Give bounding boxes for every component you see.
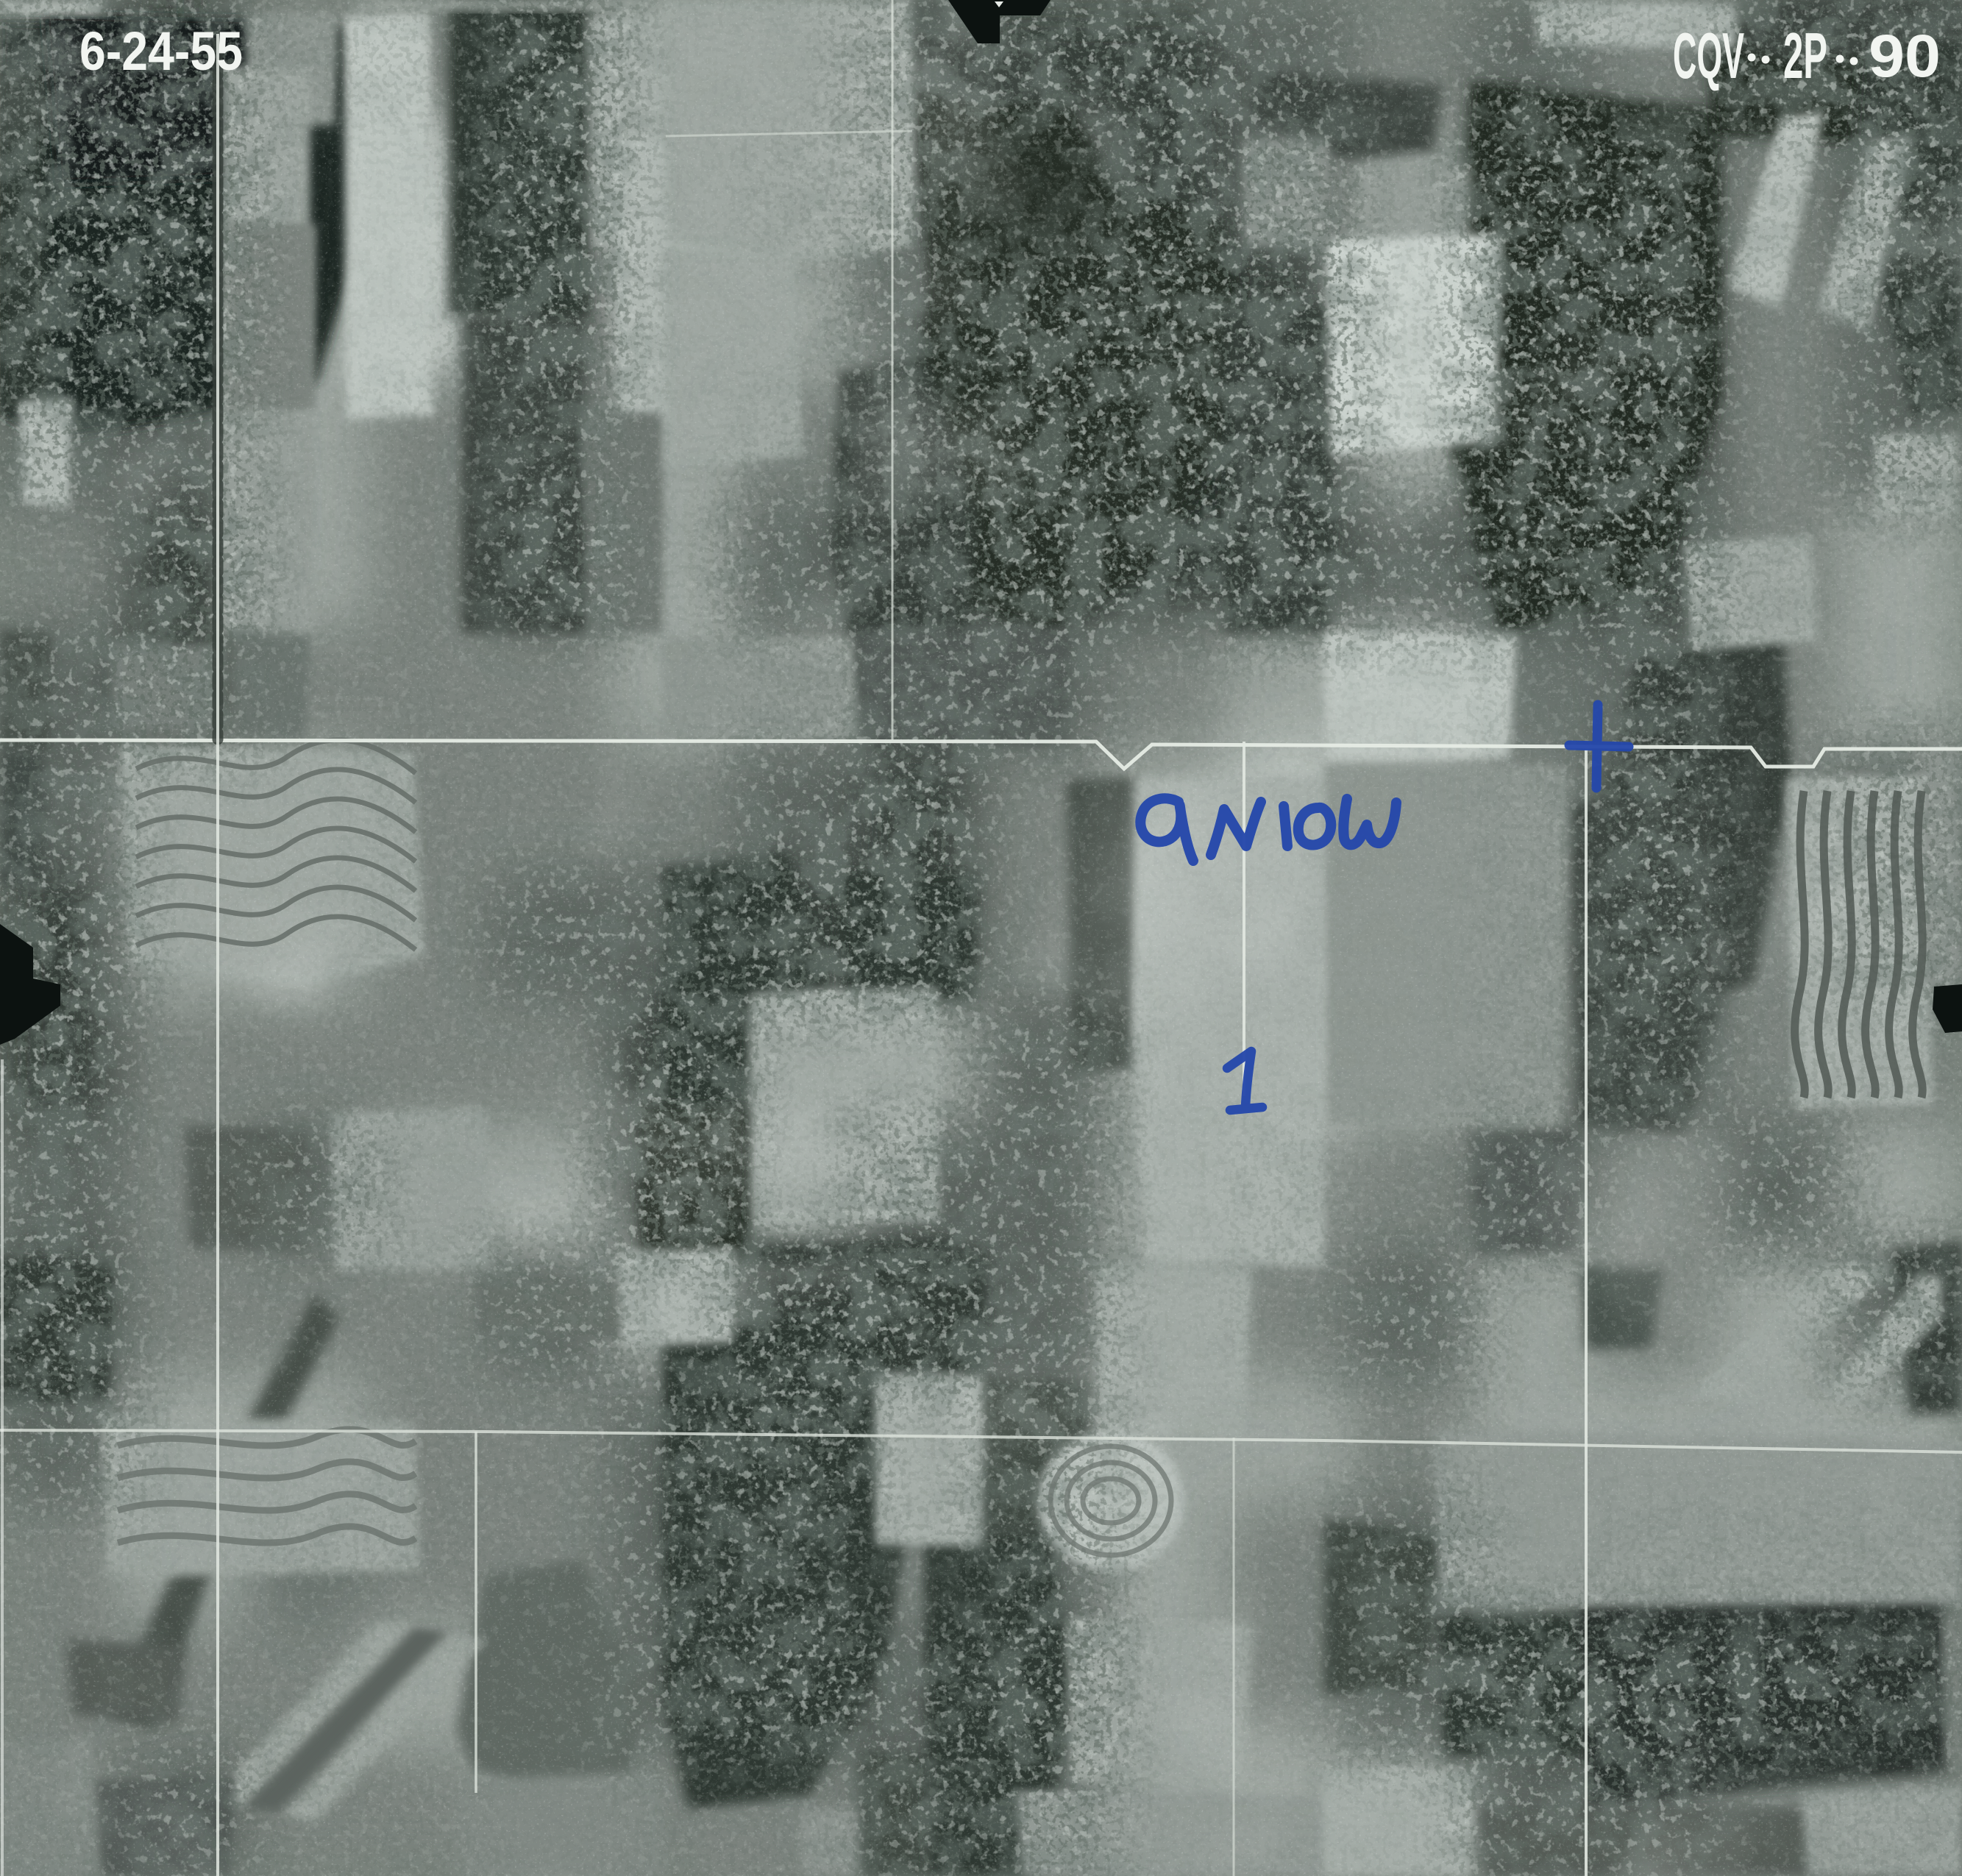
svg-text:CQV: CQV: [1673, 19, 1744, 92]
svg-text:90: 90: [1869, 23, 1941, 90]
svg-text:6-24-55: 6-24-55: [79, 21, 243, 82]
svg-text:2P: 2P: [1783, 19, 1827, 92]
